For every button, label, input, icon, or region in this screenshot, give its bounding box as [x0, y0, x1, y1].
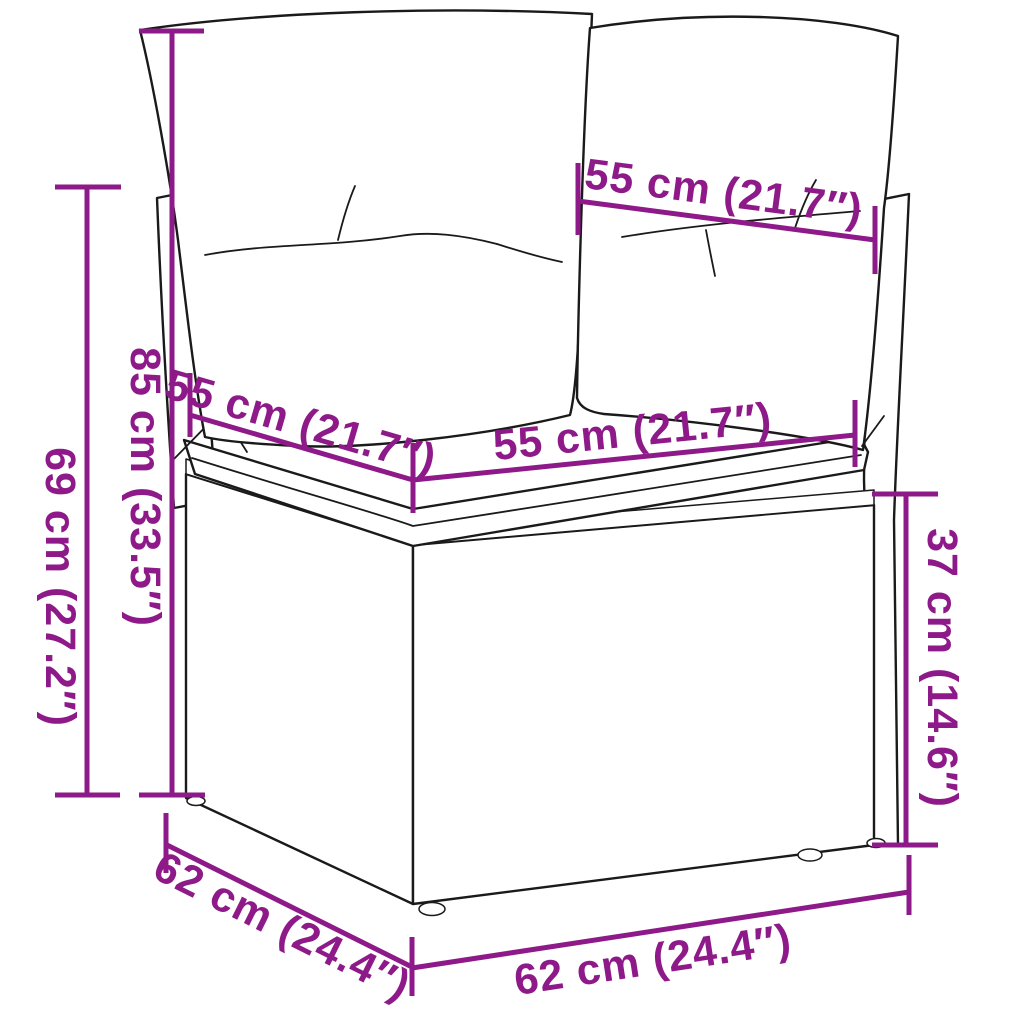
base-front-face-weave	[413, 505, 874, 904]
dimension-left-outer-height: 69 cm (27.2″)	[36, 187, 121, 795]
base-left-face-weave	[186, 474, 413, 904]
sofa-foot	[187, 797, 205, 806]
sofa-foot	[419, 903, 445, 916]
sofa-foot	[798, 849, 822, 861]
right-back-cushion	[577, 17, 898, 450]
product-diagram-page: 69 cm (27.2″) 85 cm (33.5″) 55 cm (21.7″…	[0, 0, 1024, 1024]
product-dimension-diagram: 69 cm (27.2″) 85 cm (33.5″) 55 cm (21.7″…	[0, 0, 1024, 1024]
dimension-label-left-outer-height: 69 cm (27.2″)	[36, 447, 84, 727]
dimension-label-left-inner-height: 85 cm (33.5″)	[121, 347, 169, 627]
dimension-label-right-base-height: 37 cm (14.6″)	[918, 528, 966, 808]
